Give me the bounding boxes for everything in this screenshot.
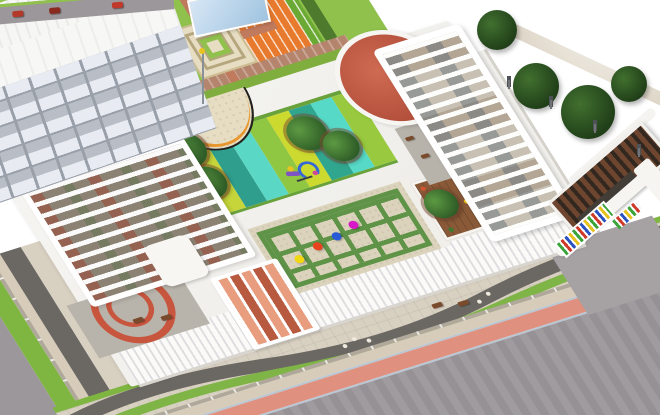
entrance-gate [548, 118, 660, 266]
tree [513, 63, 559, 109]
glass-canopy [187, 0, 271, 38]
tree [611, 66, 647, 102]
screen-overlay [0, 0, 660, 415]
car [112, 2, 123, 9]
flag-pole-finial [199, 48, 205, 54]
aerial-rendering: Aerial 3D rendering of a kindergarten ca… [0, 0, 660, 415]
tree [477, 10, 517, 50]
lamp-post [594, 124, 596, 133]
lamp-post [508, 80, 510, 89]
lamp-post [638, 148, 640, 157]
flag-pole [202, 52, 204, 104]
tree [561, 85, 615, 139]
lamp-post [550, 100, 552, 109]
car [12, 10, 23, 17]
car [49, 7, 60, 14]
